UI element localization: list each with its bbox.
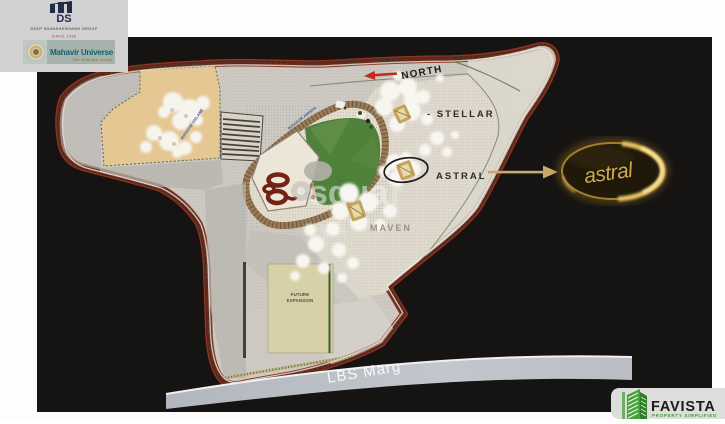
svg-text:DEEP SHANKHESHWAR GROUP: DEEP SHANKHESHWAR GROUP (31, 26, 98, 31)
svg-text:FUTURE: FUTURE (291, 292, 310, 297)
svg-text:EXPANSION: EXPANSION (287, 298, 314, 303)
svg-text:DS: DS (56, 13, 71, 25)
svg-text:SINCE 1989: SINCE 1989 (52, 35, 77, 39)
svg-text:- STELLAR: - STELLAR (427, 109, 495, 120)
svg-text:Mahavir Universe: Mahavir Universe (50, 48, 114, 57)
svg-text:The Ultimate Living: The Ultimate Living (72, 57, 112, 62)
svg-text:ASTRAL: ASTRAL (436, 171, 487, 182)
svg-text:PROPERTY SIMPLIFIED: PROPERTY SIMPLIFIED (652, 413, 717, 418)
svg-text:MAVEN: MAVEN (370, 223, 412, 233)
